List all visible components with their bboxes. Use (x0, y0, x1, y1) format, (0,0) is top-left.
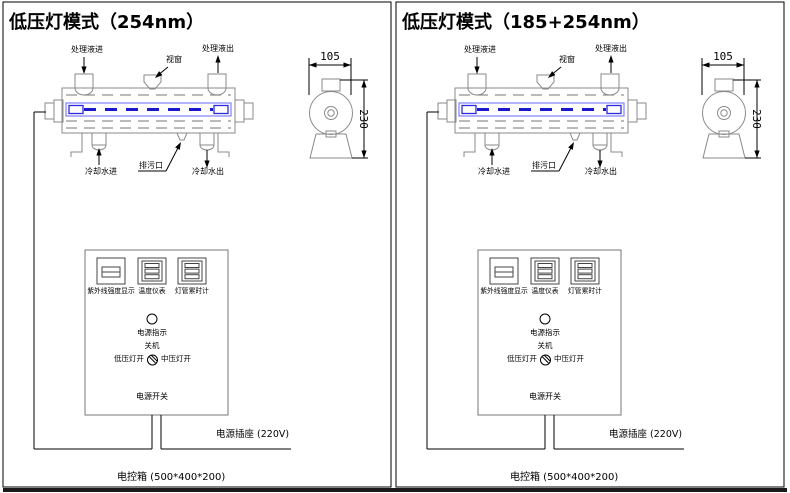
uv-lamp-end-left (462, 106, 476, 114)
meter-1-digit (145, 269, 159, 273)
label-outlet: 处理液出 (595, 43, 627, 53)
leg-left (71, 133, 82, 157)
dim105-arrow-left (309, 62, 317, 67)
power-indicator-lamp (540, 314, 550, 324)
arrowhead-outlet (608, 55, 613, 63)
side-top-stub (322, 79, 340, 91)
arrowhead-drain (568, 141, 576, 150)
arrowhead-inlet (81, 67, 86, 75)
port-outlet-arc (208, 88, 226, 95)
label-window: 视窗 (559, 54, 575, 64)
port-cooling-out (593, 133, 607, 145)
label-power-indicator: 电源指示 (530, 327, 560, 337)
arrowhead-cooling-in (489, 148, 494, 156)
drawing-sheet: 低压灯模式（254nm）处理液进视窗处理液出冷却水进排污口冷却水出105230紫… (0, 0, 790, 493)
side-base (310, 134, 352, 158)
port-cooling-in (485, 133, 499, 145)
drain-port (177, 133, 187, 140)
meter-2-label: 灯管累时计 (568, 286, 602, 295)
dim-230: 230 (750, 109, 763, 129)
gland-right-inner (628, 100, 637, 122)
label-drain: 排污口 (139, 160, 163, 170)
drain-port (570, 133, 580, 140)
uv-lamp-end-right (607, 106, 621, 114)
uv-lamp-end-left (69, 106, 83, 114)
dim230-arrow-bottom (361, 151, 366, 159)
arrowhead-cooling-in (96, 148, 101, 156)
label-switch-low: 低压灯开 (507, 353, 537, 363)
panel-title: 低压灯模式（254nm） (8, 11, 204, 33)
side-lamp-circle-inner (721, 110, 727, 116)
side-shell-circle (310, 92, 353, 135)
meter-0 (490, 258, 518, 284)
leg-right (611, 133, 622, 157)
label-switch-off: 关机 (538, 340, 553, 350)
leg-left (464, 133, 475, 157)
port-inlet-arc (75, 88, 93, 95)
port-outlet-arc (601, 88, 619, 95)
dim-105: 105 (713, 50, 733, 63)
label-outlet: 处理液出 (202, 43, 234, 53)
meter-1-label: 温度仪表 (138, 286, 165, 295)
side-top-stub (715, 79, 733, 91)
dim-105: 105 (320, 50, 340, 63)
dim105-arrow-left (702, 62, 710, 67)
gland-right-outer (637, 103, 646, 119)
arrowhead-inlet (474, 67, 479, 75)
panel-border (3, 2, 391, 487)
label-control-cabinet: 电控箱 (500*400*200) (510, 470, 618, 483)
sight-window (537, 75, 554, 89)
meter-2-digit (578, 269, 592, 273)
meter-1-digit (145, 264, 159, 268)
arrowhead-drain (175, 141, 183, 150)
side-lamp-circle-outer (718, 107, 731, 120)
meter-0-label: 紫外线强度显示 (87, 286, 135, 295)
sight-window (144, 75, 161, 89)
meter-1-digit (538, 275, 552, 279)
label-power-socket: 电源插座 (220V) (216, 428, 289, 440)
dim105-arrow-right (737, 62, 745, 67)
dim230-arrow-top (754, 80, 759, 88)
panel-185-254nm: 低压灯模式（185+254nm）处理液进视窗处理液出冷却水进排污口冷却水出105… (396, 2, 784, 487)
label-cooling-in: 冷却水进 (478, 166, 510, 176)
dim230-arrow-bottom (754, 151, 759, 159)
label-switch-off: 关机 (145, 340, 160, 350)
meter-2-digit (578, 264, 592, 268)
label-inlet: 处理液进 (71, 44, 103, 54)
dim230-arrow-top (361, 80, 366, 88)
label-drain: 排污口 (532, 160, 556, 170)
label-window: 视窗 (166, 54, 182, 64)
label-power-switch: 电源开关 (136, 391, 168, 401)
panel-border (396, 2, 784, 487)
label-power-socket: 电源插座 (220V) (609, 428, 682, 440)
side-lamp-circle-outer (325, 107, 338, 120)
port-outlet (601, 74, 619, 88)
label-control-cabinet: 电控箱 (500*400*200) (117, 470, 225, 483)
meter-2-digit (185, 275, 199, 279)
port-inlet (75, 74, 93, 88)
side-base (703, 134, 745, 158)
meter-0 (97, 258, 125, 284)
port-cooling-in (92, 133, 106, 145)
power-indicator-lamp (147, 314, 157, 324)
port-cooling-out-arc (200, 145, 214, 150)
meter-1-digit (538, 264, 552, 268)
side-lamp-circle-inner (328, 110, 334, 116)
meter-2-digit (185, 269, 199, 273)
sheet-bottom-edge (3, 488, 787, 492)
label-cooling-out: 冷却水出 (585, 166, 617, 176)
meter-0-label: 紫外线强度显示 (480, 286, 528, 295)
meter-1-label: 温度仪表 (531, 286, 558, 295)
port-inlet (468, 74, 486, 88)
dim105-arrow-right (344, 62, 352, 67)
panel-254nm: 低压灯模式（254nm）处理液进视窗处理液出冷却水进排污口冷却水出105230紫… (3, 2, 391, 487)
port-outlet (208, 74, 226, 88)
label-switch-mid: 中压灯开 (161, 353, 191, 363)
arrowhead-outlet (215, 55, 220, 63)
panel-title: 低压灯模式（185+254nm） (401, 11, 650, 33)
meter-2-digit (578, 275, 592, 279)
label-power-indicator: 电源指示 (137, 327, 167, 337)
gland-left-outer (45, 103, 54, 119)
side-shell-circle (703, 92, 746, 135)
port-inlet-arc (468, 88, 486, 95)
leg-right (218, 133, 229, 157)
dim-230: 230 (357, 109, 370, 129)
uv-lamp-end-right (214, 106, 228, 114)
meter-2-label: 灯管累时计 (175, 286, 209, 295)
label-cooling-out: 冷却水出 (192, 166, 224, 176)
gland-right-inner (235, 100, 244, 122)
label-switch-low: 低压灯开 (114, 353, 144, 363)
label-switch-mid: 中压灯开 (554, 353, 584, 363)
port-cooling-out (200, 133, 214, 145)
gland-right-outer (244, 103, 253, 119)
label-inlet: 处理液进 (464, 44, 496, 54)
label-cooling-in: 冷却水进 (85, 166, 117, 176)
gland-left-outer (438, 103, 447, 119)
meter-1-digit (538, 269, 552, 273)
meter-2-digit (185, 264, 199, 268)
port-cooling-out-arc (593, 145, 607, 150)
label-power-switch: 电源开关 (529, 391, 561, 401)
meter-1-digit (145, 275, 159, 279)
technical-drawing: 低压灯模式（254nm）处理液进视窗处理液出冷却水进排污口冷却水出105230紫… (0, 0, 790, 493)
